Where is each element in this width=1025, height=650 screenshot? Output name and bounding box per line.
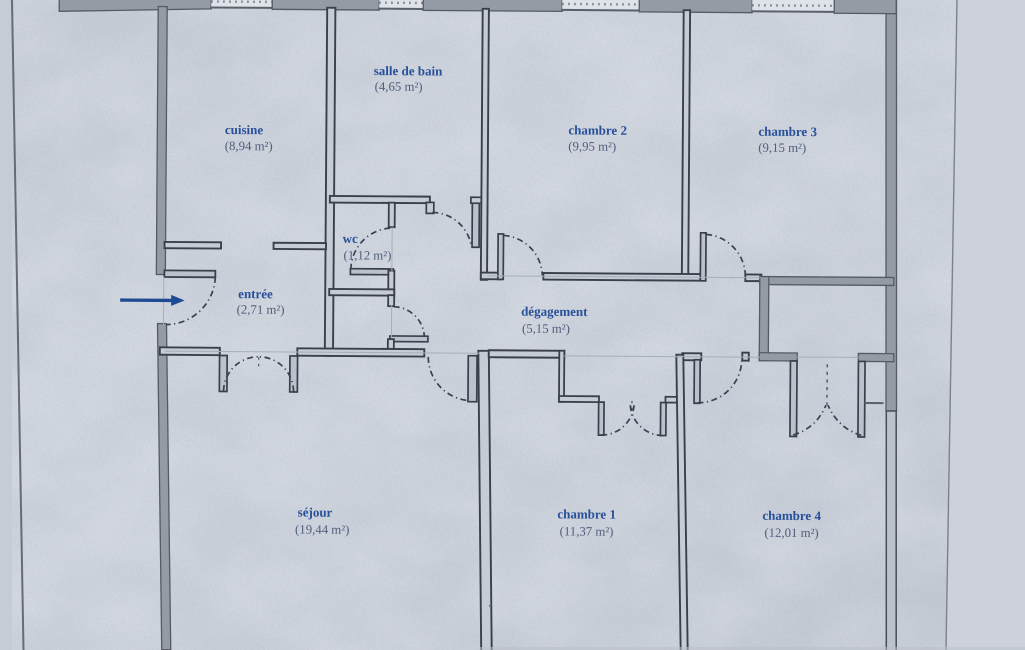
- svg-text:entrée: entrée: [238, 286, 273, 301]
- svg-text:séjour: séjour: [298, 505, 333, 520]
- svg-text:(19,44 m²): (19,44 m²): [295, 522, 349, 536]
- svg-text:chambre 2: chambre 2: [568, 122, 627, 137]
- svg-text:(1,12 m²): (1,12 m²): [343, 248, 391, 262]
- svg-text:wc: wc: [343, 231, 358, 246]
- svg-text:chambre 1: chambre 1: [557, 506, 616, 521]
- svg-text:chambre 3: chambre 3: [758, 124, 817, 139]
- svg-text:(11,37 m²): (11,37 m²): [560, 524, 614, 538]
- svg-text:salle de bain: salle de bain: [374, 63, 443, 78]
- svg-text:(8,94 m²): (8,94 m²): [225, 139, 273, 153]
- svg-text:(9,95 m²): (9,95 m²): [568, 139, 616, 153]
- svg-text:cuisine: cuisine: [225, 122, 264, 137]
- svg-text:(9,15 m²): (9,15 m²): [758, 141, 806, 155]
- svg-text:chambre 4: chambre 4: [762, 508, 821, 523]
- svg-text:dégagement: dégagement: [521, 304, 588, 319]
- svg-text:(12,01 m²): (12,01 m²): [764, 526, 818, 540]
- svg-text:(5,15 m²): (5,15 m²): [522, 322, 570, 336]
- svg-text:(2,71 m²): (2,71 m²): [237, 303, 285, 317]
- svg-text:(4,65 m²): (4,65 m²): [375, 80, 423, 94]
